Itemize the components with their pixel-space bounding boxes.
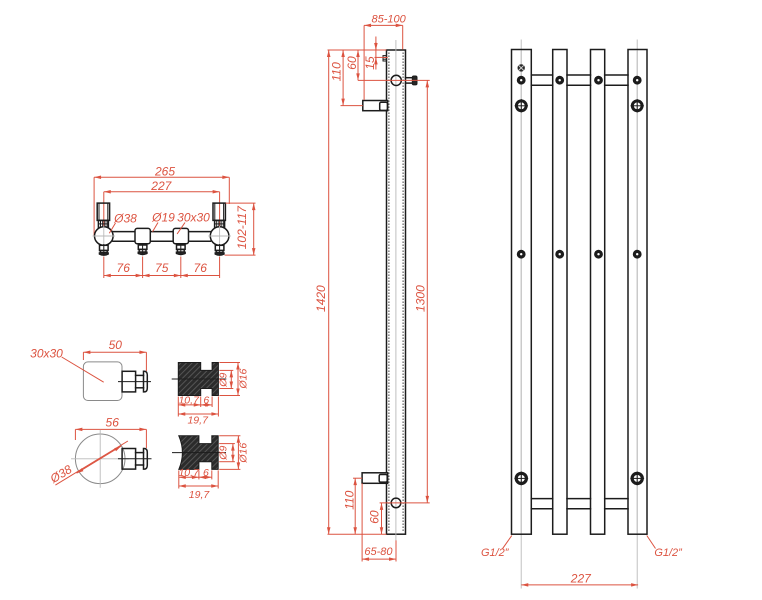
- svg-text:Ø38: Ø38: [113, 211, 137, 225]
- svg-text:30x30: 30x30: [177, 210, 210, 224]
- svg-text:G1/2”: G1/2”: [654, 547, 683, 559]
- svg-text:15: 15: [363, 56, 377, 70]
- svg-text:30x30: 30x30: [30, 347, 63, 361]
- svg-text:1300: 1300: [413, 285, 427, 312]
- svg-text:110: 110: [343, 490, 357, 509]
- svg-text:10,7: 10,7: [178, 467, 200, 479]
- svg-text:Ø16: Ø16: [238, 443, 250, 464]
- svg-text:6: 6: [203, 395, 209, 407]
- svg-text:19,7: 19,7: [189, 489, 211, 501]
- svg-text:Ø16: Ø16: [237, 369, 249, 390]
- svg-text:1420: 1420: [314, 285, 328, 312]
- svg-text:60: 60: [368, 510, 382, 524]
- svg-text:10,7: 10,7: [178, 395, 200, 407]
- svg-text:Ø9: Ø9: [218, 446, 230, 461]
- svg-text:60: 60: [345, 56, 359, 70]
- svg-text:19,7: 19,7: [187, 414, 209, 426]
- svg-text:Ø19: Ø19: [151, 210, 175, 224]
- svg-text:6: 6: [203, 467, 209, 479]
- svg-text:G1/2”: G1/2”: [481, 547, 510, 559]
- svg-text:50: 50: [109, 338, 123, 352]
- svg-text:Ø9: Ø9: [217, 373, 229, 388]
- svg-text:56: 56: [106, 416, 120, 430]
- svg-text:65-80: 65-80: [364, 546, 393, 558]
- svg-text:227: 227: [570, 571, 592, 585]
- svg-text:85-100: 85-100: [371, 14, 406, 26]
- svg-text:75: 75: [155, 261, 169, 275]
- svg-text:76: 76: [117, 261, 131, 275]
- svg-text:102-117: 102-117: [235, 205, 249, 249]
- svg-text:110: 110: [330, 62, 344, 81]
- svg-text:76: 76: [194, 261, 208, 275]
- svg-text:265: 265: [154, 165, 175, 179]
- svg-text:227: 227: [150, 179, 172, 193]
